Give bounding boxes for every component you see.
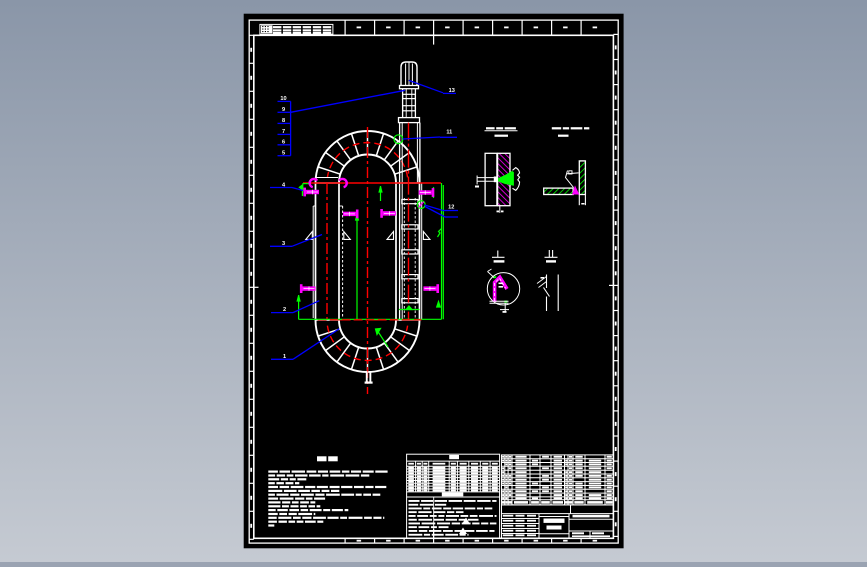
- svg-text:8: 8: [282, 118, 285, 124]
- svg-text:6: 6: [282, 140, 285, 146]
- svg-text:2: 2: [283, 307, 286, 313]
- svg-text:3: 3: [282, 241, 285, 247]
- svg-text:7: 7: [282, 129, 285, 135]
- svg-text:5: 5: [282, 151, 285, 157]
- svg-text:11: 11: [446, 130, 452, 136]
- svg-text:12: 12: [448, 205, 454, 211]
- svg-text:13: 13: [449, 88, 455, 94]
- svg-text:10: 10: [280, 96, 286, 102]
- svg-text:9: 9: [282, 107, 285, 113]
- svg-text:1: 1: [283, 354, 286, 360]
